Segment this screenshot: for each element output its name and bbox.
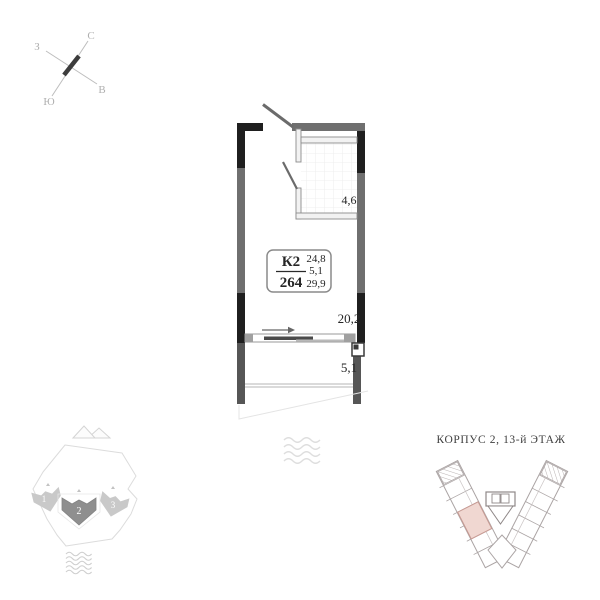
site-building-2-label: 2 [77,506,82,517]
water-waves-icon [284,438,320,464]
sliding-door-panel [264,337,313,341]
unit-block-label: К2 [282,254,300,270]
unit-number-label: 264 [280,275,303,291]
bathroom-niche-wall [301,137,357,143]
floorplan-page: С В Ю З [0,0,600,600]
floor-diagram-title: КОРПУС 2, 13-й ЭТАЖ [437,434,566,446]
mountains-icon [73,426,110,438]
left-wall [237,123,245,404]
area-living-label: 24,8 [306,253,326,265]
terrace-outline [239,391,368,419]
compass-north-pointer [64,56,79,75]
balcony: 5,1 [239,343,368,419]
site-building-1-label: 1 [42,494,47,504]
bathroom-area-label: 4,6 [342,193,357,207]
site-building-1 [31,486,64,515]
compass-south-label: Ю [43,96,54,108]
compass-north-label: С [87,30,94,42]
site-building-3-label: 3 [111,500,116,510]
site-map: 1 2 3 [31,426,137,574]
diagram-central-core [486,492,515,524]
unit-badge: К2 264 24,8 5,1 29,9 [267,250,331,292]
site-water-waves-icon [66,552,92,574]
compass-west-label: З [34,41,40,53]
living-room-area-label: 20,2 [338,311,361,326]
floor-diagram: КОРПУС 2, 13-й ЭТАЖ [432,434,571,570]
area-extra-label: 5,1 [309,265,323,277]
bathroom-door-leaf [283,162,297,189]
bathroom-bottom-wall [296,213,357,219]
apartment-plan: 4,6 20,2 К2 264 24,8 5,1 29,9 [237,105,368,420]
balcony-window-wall [245,334,355,342]
bathroom: 4,6 [283,129,357,219]
compass-rose: С В Ю З [34,30,105,108]
area-total-label: 29,9 [306,278,326,290]
compass-east-label: В [98,84,105,96]
entrance-door-leaf [263,105,293,128]
slide-direction-arrow-icon [262,327,295,333]
balcony-area-label: 5,1 [341,360,357,375]
